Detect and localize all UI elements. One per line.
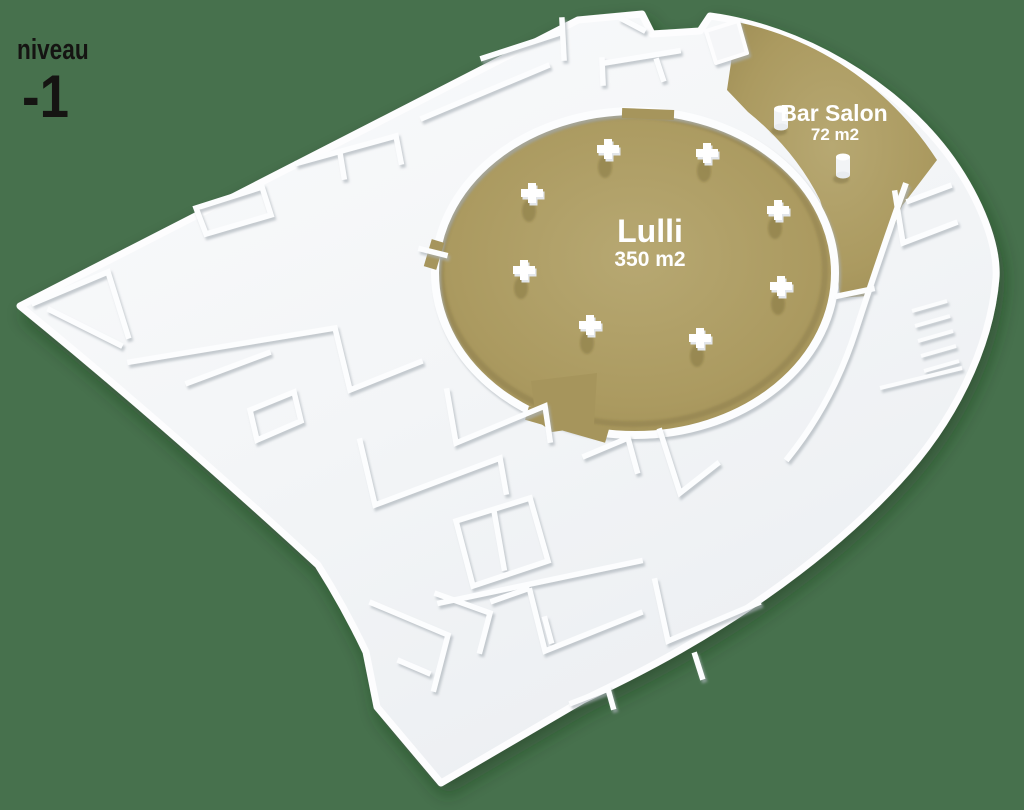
floorplan-3d-render: niveau -1 Lulli 350 m2 Bar Salon 72 m2 (0, 0, 1024, 810)
bar-salon-name: Bar Salon (780, 100, 887, 126)
level-value: -1 (22, 63, 69, 130)
bar-salon-area: 72 m2 (811, 125, 859, 144)
lulli-area: 350 m2 (614, 248, 685, 271)
floorplan-stage: niveau -1 Lulli 350 m2 Bar Salon 72 m2 (0, 0, 1024, 810)
lulli-entrance-floor (531, 373, 597, 432)
lulli-name: Lulli (617, 213, 683, 249)
wedge-room-wall (706, 21, 747, 63)
lulli-north-opening (622, 113, 674, 115)
lulli-label-group: Lulli 350 m2 (614, 213, 685, 271)
cylinder-column-icon (836, 154, 850, 161)
level-label: niveau (17, 32, 89, 65)
lulli-room[interactable] (430, 111, 835, 436)
